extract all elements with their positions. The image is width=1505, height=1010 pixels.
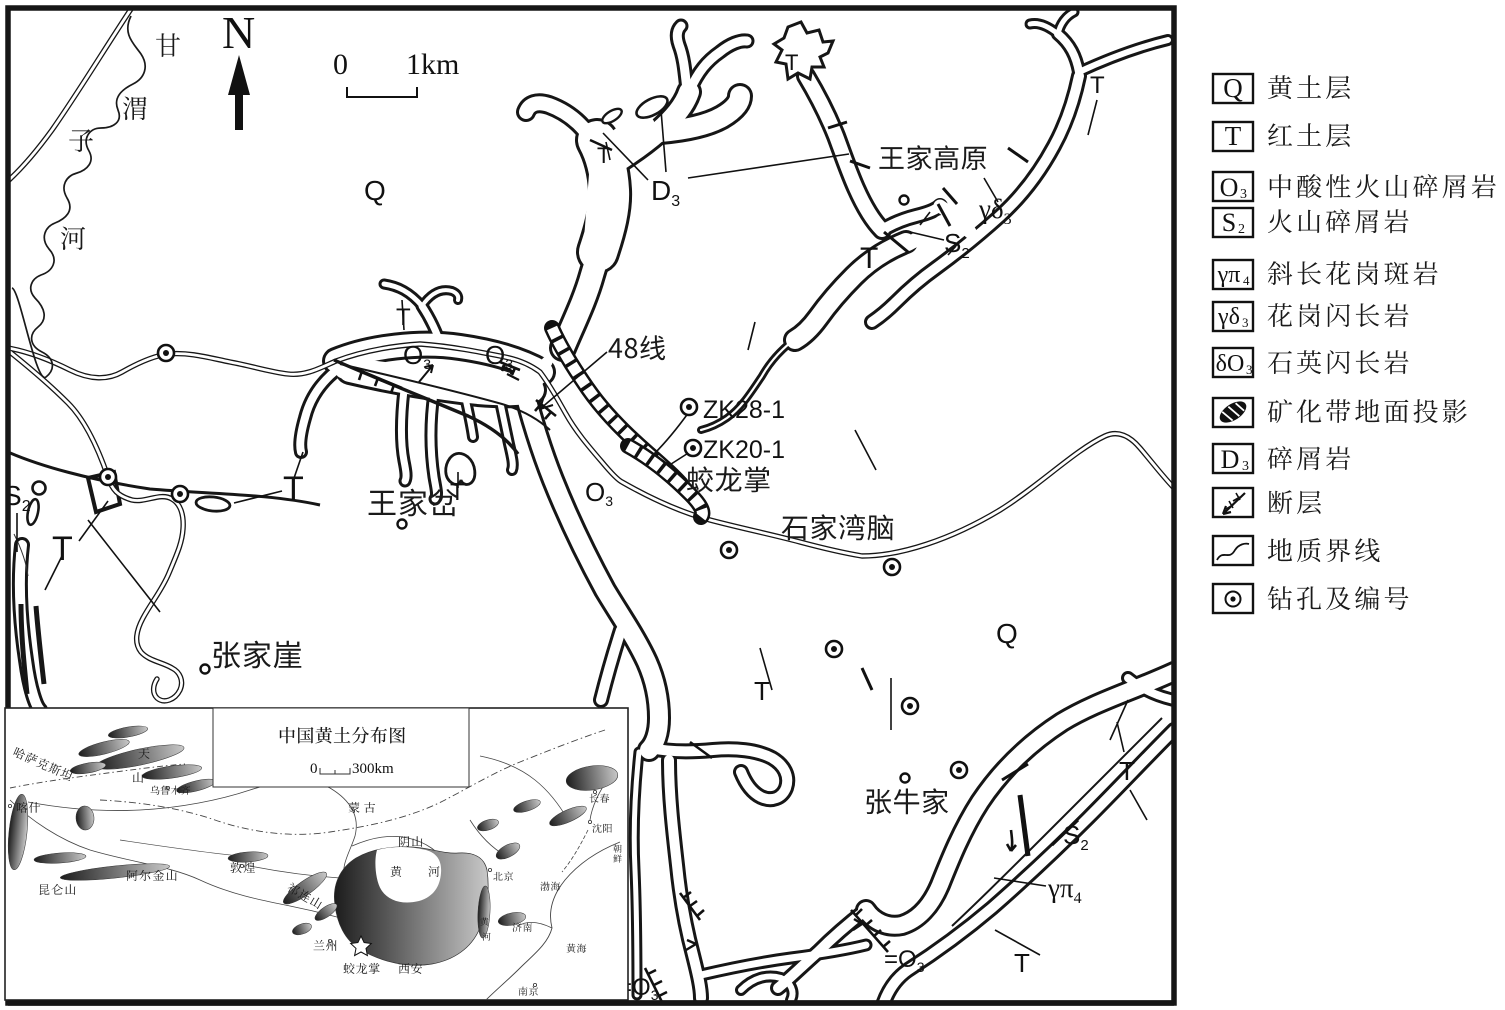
svg-text:3: 3: [1242, 459, 1249, 474]
svg-text:Q: Q: [364, 175, 386, 206]
svg-text:T: T: [1225, 121, 1242, 151]
svg-text:ZK28-1: ZK28-1: [703, 396, 785, 424]
svg-text:T: T: [1090, 72, 1105, 99]
svg-text:T: T: [1014, 948, 1030, 978]
svg-text:T: T: [785, 50, 798, 75]
svg-text:0: 0: [333, 48, 348, 81]
svg-text:O: O: [1220, 173, 1239, 202]
svg-text:2: 2: [1238, 222, 1245, 237]
svg-text:T: T: [396, 304, 411, 331]
svg-text:T: T: [283, 470, 304, 508]
svg-text:300km: 300km: [352, 761, 394, 777]
svg-text:1km: 1km: [406, 48, 459, 81]
svg-text:Q: Q: [996, 618, 1018, 649]
svg-text:4: 4: [1243, 273, 1250, 288]
svg-text:ZK20-1: ZK20-1: [703, 436, 785, 464]
svg-text:T: T: [52, 530, 73, 568]
svg-text:N: N: [222, 7, 255, 58]
svg-text:T: T: [450, 479, 465, 506]
svg-text:D: D: [1221, 445, 1240, 474]
svg-text:T: T: [1119, 756, 1135, 786]
svg-text:T: T: [860, 242, 878, 275]
svg-text:S: S: [1222, 208, 1236, 237]
svg-text:γδ: γδ: [1217, 304, 1240, 330]
svg-text:Q: Q: [1223, 73, 1243, 103]
svg-text:3: 3: [1242, 315, 1249, 330]
svg-text:3: 3: [1246, 362, 1253, 377]
svg-text:δO: δO: [1216, 351, 1245, 377]
svg-text:T: T: [754, 676, 770, 706]
svg-text:T: T: [597, 143, 610, 168]
svg-text:3: 3: [1240, 187, 1247, 202]
svg-text:0: 0: [310, 761, 318, 777]
svg-text:γπ: γπ: [1217, 262, 1241, 288]
